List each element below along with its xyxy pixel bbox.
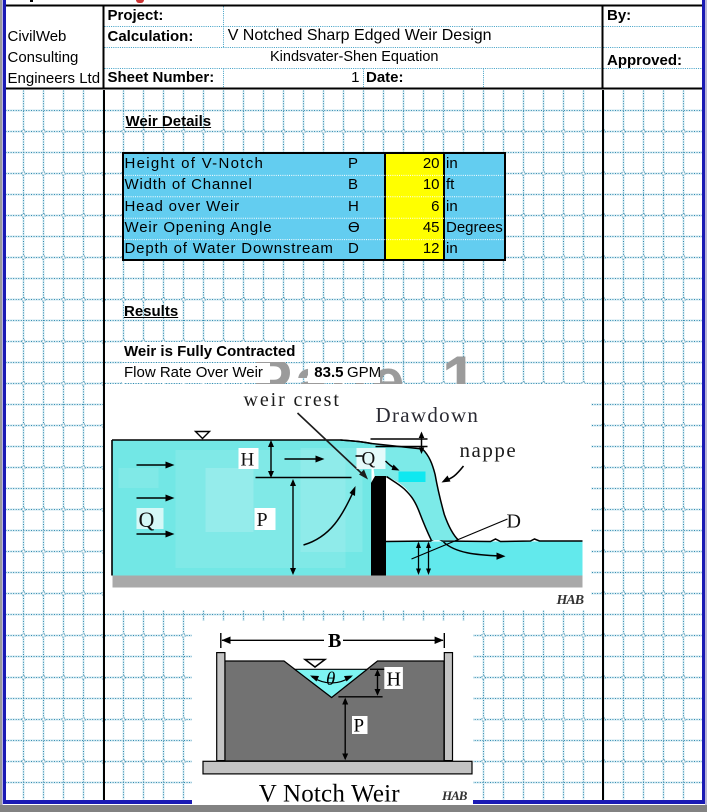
svg-text:H: H (240, 450, 254, 471)
svg-text:HAB: HAB (441, 788, 468, 803)
svg-text:P: P (256, 509, 267, 531)
svg-text:nappe: nappe (459, 438, 517, 462)
svg-text:weir crest: weir crest (243, 389, 340, 411)
svg-text:B: B (328, 630, 341, 652)
svg-text:H: H (387, 669, 401, 691)
svg-text:Q: Q (361, 449, 375, 470)
svg-text:θ: θ (326, 669, 335, 690)
svg-text:P: P (354, 716, 365, 737)
svg-text:Q: Q (138, 507, 154, 532)
svg-text:Drawdown: Drawdown (375, 403, 479, 427)
svg-text:HAB: HAB (555, 593, 583, 608)
svg-text:D: D (506, 511, 520, 533)
svg-text:V Notch Weir: V Notch Weir (259, 781, 401, 808)
